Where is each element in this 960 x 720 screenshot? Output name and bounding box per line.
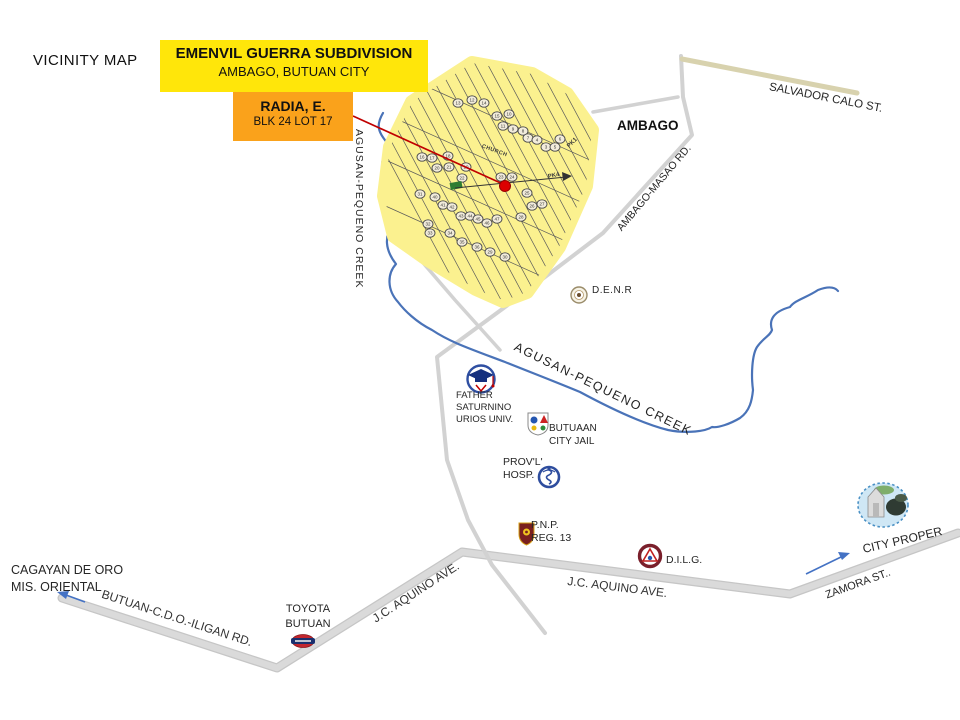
block-number: 35	[459, 240, 465, 245]
block-number: 31	[417, 192, 423, 197]
pnp-line1: P.N.P.	[531, 519, 571, 532]
jail-line2: CITY JAIL	[549, 435, 597, 448]
lot-owner-callout-box: RADIA, E. BLK 24 LOT 17	[233, 92, 353, 141]
fsuu-line2: SATURNINO	[456, 402, 513, 414]
cagayan-line2: MIS. ORIENTAL	[11, 579, 123, 596]
block-number: 30	[502, 255, 508, 260]
hosp-line1: PROV'L'	[503, 456, 543, 469]
block-number: 26	[529, 204, 535, 209]
block-number: 23	[498, 175, 504, 180]
block-number: 20	[434, 166, 440, 171]
fsuu-line3: URIOS UNIV.	[456, 414, 513, 426]
place-label-provincial-hospital: PROV'L' HOSP.	[503, 456, 543, 482]
block-number: 45	[475, 217, 481, 222]
block-number: 34	[447, 231, 453, 236]
block-number: 46	[484, 221, 490, 226]
block-number: 10	[506, 112, 512, 117]
block-number: 47	[494, 217, 500, 222]
block-number: 42	[449, 205, 455, 210]
page-title: VICINITY MAP	[33, 52, 138, 69]
lot-location-dot	[500, 181, 511, 192]
lot-owner-name: RADIA, E.	[233, 98, 353, 114]
place-label-dilg: D.I.L.G.	[666, 554, 702, 566]
block-number: 43	[458, 214, 464, 219]
fsuu-line1: FATHER	[456, 390, 513, 402]
jail-line1: BUTUAAN	[549, 422, 597, 435]
block-number: 25	[524, 191, 530, 196]
block-number: 36	[474, 245, 480, 250]
city-jail-icon	[528, 413, 548, 435]
block-number: 27	[539, 202, 545, 207]
block-number: 11	[501, 124, 506, 129]
creek-label-west: AGUSAN-PEQUENO CREEK	[353, 129, 365, 288]
city-proper-icon	[858, 483, 908, 527]
block-number: 44	[467, 214, 473, 219]
vicinity-map-canvas: 1312141510119874356161718202119222324252…	[0, 0, 960, 720]
block-number: 21	[446, 165, 452, 170]
toyota-line2: BUTUAN	[278, 617, 338, 632]
block-number: 41	[440, 203, 446, 208]
hosp-line2: HOSP.	[503, 469, 543, 482]
place-label-toyota-butuan: TOYOTA BUTUAN	[278, 602, 338, 632]
dilg-icon	[640, 546, 661, 567]
block-number: 17	[429, 156, 435, 161]
block-number: 33	[427, 231, 433, 236]
area-label-ambago: AMBAGO	[617, 118, 679, 134]
place-label-city-jail: BUTUAAN CITY JAIL	[549, 422, 597, 448]
block-number: 28	[518, 215, 524, 220]
toyota-dealer-icon	[291, 635, 315, 648]
block-number: 13	[455, 101, 461, 106]
area-label-cagayan-de-oro: CAGAYAN DE ORO MIS. ORIENTAL	[11, 562, 123, 596]
highway-road	[62, 533, 958, 668]
block-number: 22	[459, 176, 465, 181]
block-number: 24	[509, 175, 515, 180]
denr-icon	[571, 287, 587, 303]
block-number: 29	[487, 250, 493, 255]
block-number: 16	[419, 155, 425, 160]
university-icon	[468, 366, 495, 393]
block-number: 12	[469, 98, 475, 103]
block-number: 32	[425, 222, 431, 227]
lot-block-number: BLK 24 LOT 17	[233, 116, 353, 128]
block-number: 40	[432, 195, 438, 200]
place-label-urios-university: FATHER SATURNINO URIOS UNIV.	[456, 390, 513, 426]
place-label-denr: D.E.N.R	[592, 285, 632, 297]
subdivision-name: EMENVIL GUERRA SUBDIVISION	[160, 45, 428, 62]
subdivision-callout-box: EMENVIL GUERRA SUBDIVISION AMBAGO, BUTUA…	[160, 40, 428, 92]
pnp-line2: REG. 13	[531, 532, 571, 545]
subdivision-location: AMBAGO, BUTUAN CITY	[160, 64, 428, 79]
toyota-line1: TOYOTA	[278, 602, 338, 617]
block-number: 15	[494, 114, 500, 119]
place-label-pnp-reg13: P.N.P. REG. 13	[531, 519, 571, 545]
block-number: 14	[481, 101, 487, 106]
cagayan-line1: CAGAYAN DE ORO	[11, 562, 123, 579]
